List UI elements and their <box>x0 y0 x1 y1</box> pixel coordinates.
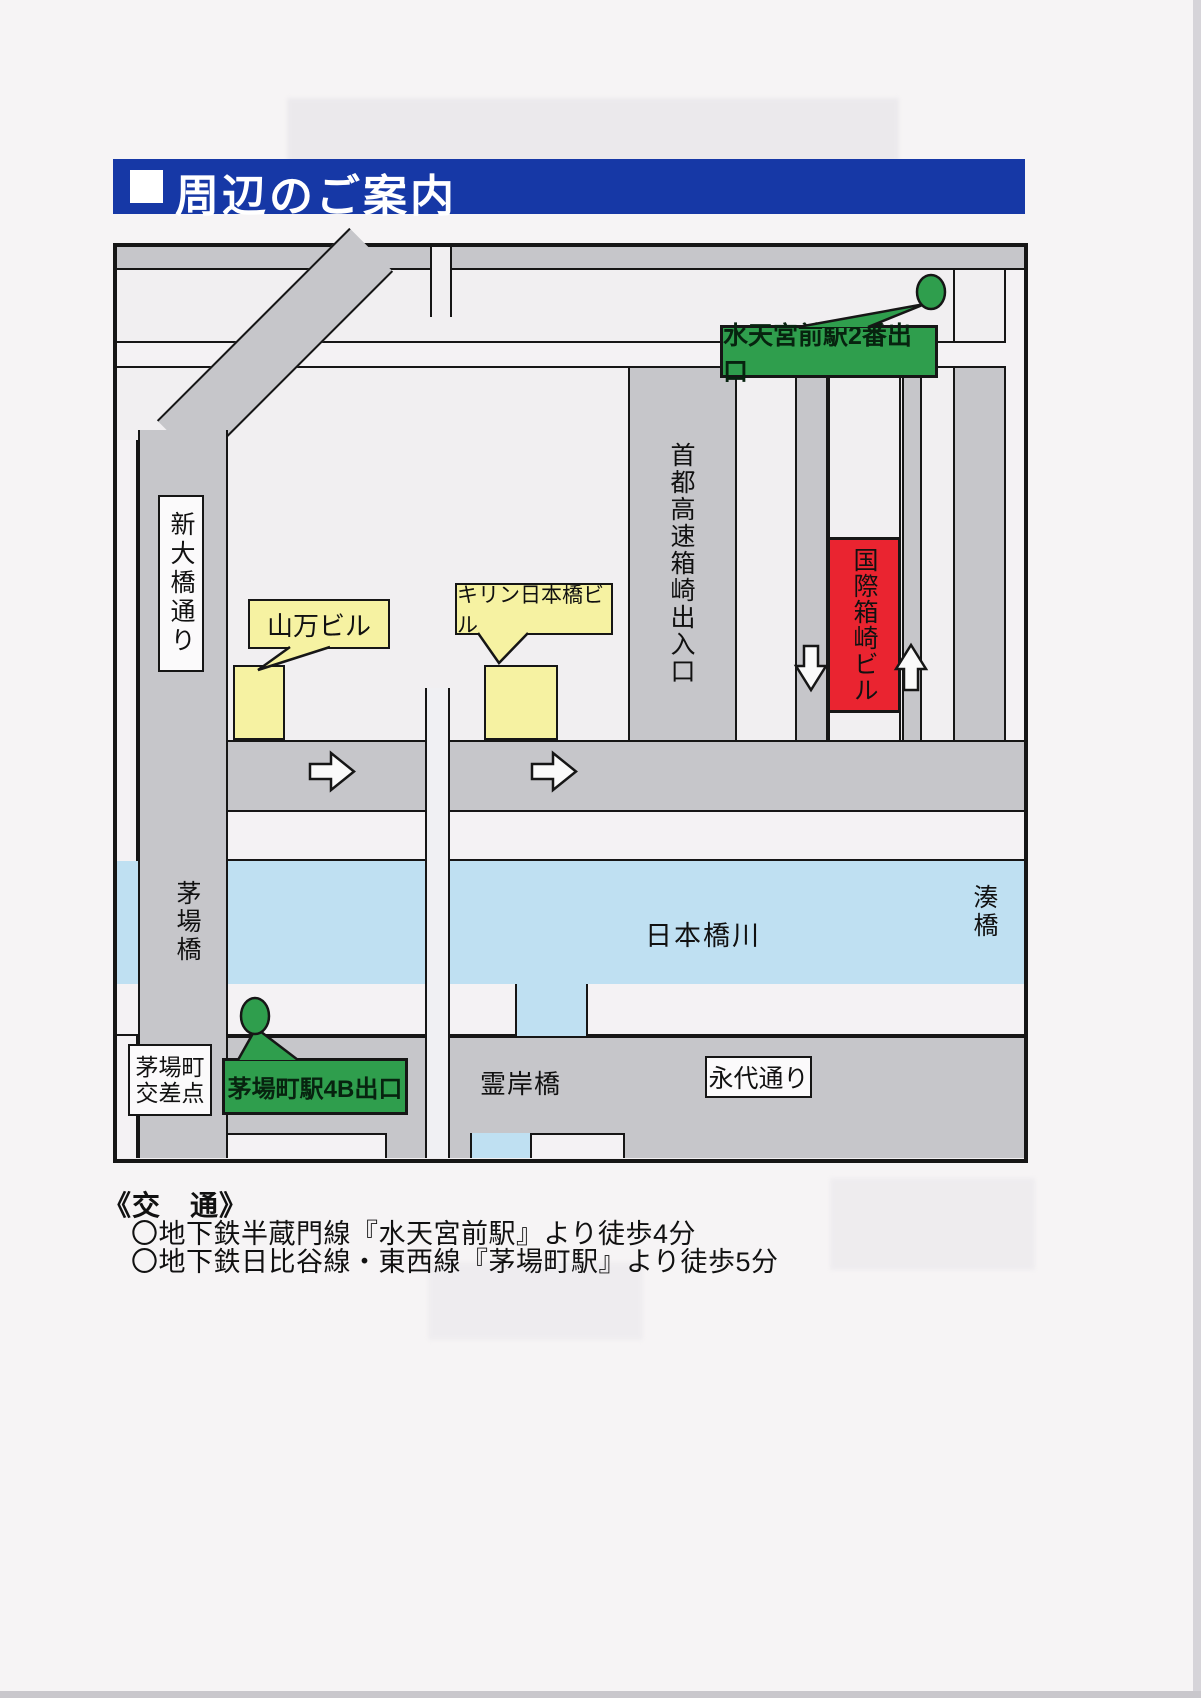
road-vertical-narrow-2 <box>902 368 922 740</box>
bubble-yamaman: 山万ビル <box>248 599 390 649</box>
road-minato-upper-white <box>953 270 1006 341</box>
header-square-bullet-icon <box>130 170 163 203</box>
road-vertical-narrow-1 <box>795 368 828 740</box>
road-stub-north <box>430 247 452 317</box>
river <box>117 861 1024 984</box>
river-bank-north <box>117 812 1024 861</box>
river-branch <box>515 984 588 1036</box>
bridge-label-reigan: 霊岸橋 <box>480 1064 561 1101</box>
road-label-eitai-text: 永代通り <box>708 1059 808 1095</box>
road-west-white-strip <box>117 440 138 861</box>
header-bar: 周辺のご案内 <box>113 159 1025 214</box>
river-bank-south-of-road <box>530 1133 625 1158</box>
bridge-label-kayaba: 茅場橋 <box>169 880 205 964</box>
bubble-kirin-label: キリン日本橋ビル <box>457 579 611 639</box>
road-main-horizontal <box>117 740 1024 812</box>
river-label: 日本橋川 <box>645 914 761 953</box>
scan-edge-bottom <box>0 1691 1201 1698</box>
road-bottom-notch-center <box>213 1133 387 1158</box>
page-title: 周辺のご案内 <box>175 160 457 224</box>
bubble-yamaman-label: 山万ビル <box>267 606 371 643</box>
station-exit-kayabacho-label: 茅場町駅4B出口 <box>228 1069 403 1104</box>
scan-bleedthrough <box>830 1178 1035 1270</box>
river-branch-south-of-road <box>470 1133 530 1158</box>
scanned-access-map-page: 周辺のご案内 国際箱崎ビル 新大橋通り 首都高速箱崎出入口 茅 <box>0 0 1201 1698</box>
scan-edge-right <box>1193 0 1201 1698</box>
building-yamaman <box>233 665 285 740</box>
road-top <box>117 247 1024 270</box>
building-kokusai-hakozaki-label: 国際箱崎ビル <box>846 547 882 710</box>
road-label-eitai-box: 永代通り <box>705 1056 812 1098</box>
station-exit-suitengumae: 水天宮前駅2番出口 <box>720 325 938 378</box>
bridge-label-minato: 湊橋 <box>966 884 1002 940</box>
station-exit-kayabacho: 茅場町駅4B出口 <box>222 1058 408 1115</box>
road-label-shin-ohashi: 新大橋通り <box>158 495 204 672</box>
road-label-shin-ohashi-text: 新大橋通り <box>163 511 199 656</box>
road-vertical-narrow-south <box>425 688 450 1158</box>
bubble-kirin: キリン日本橋ビル <box>455 583 613 635</box>
station-exit-suitengumae-label: 水天宮前駅2番出口 <box>723 316 935 388</box>
access-item-2: 〇地下鉄日比谷線・東西線『茅場町駅』より徒歩5分 <box>131 1240 778 1279</box>
intersection-label-line1: 茅場町 <box>136 1054 205 1080</box>
building-kirin <box>484 665 558 740</box>
intersection-label-box: 茅場町 交差点 <box>128 1044 212 1116</box>
road-label-shuto-expressway: 首都高速箱崎出入口 <box>663 442 699 692</box>
building-kokusai-hakozaki: 国際箱崎ビル <box>827 537 901 713</box>
intersection-label-line2: 交差点 <box>136 1080 205 1106</box>
